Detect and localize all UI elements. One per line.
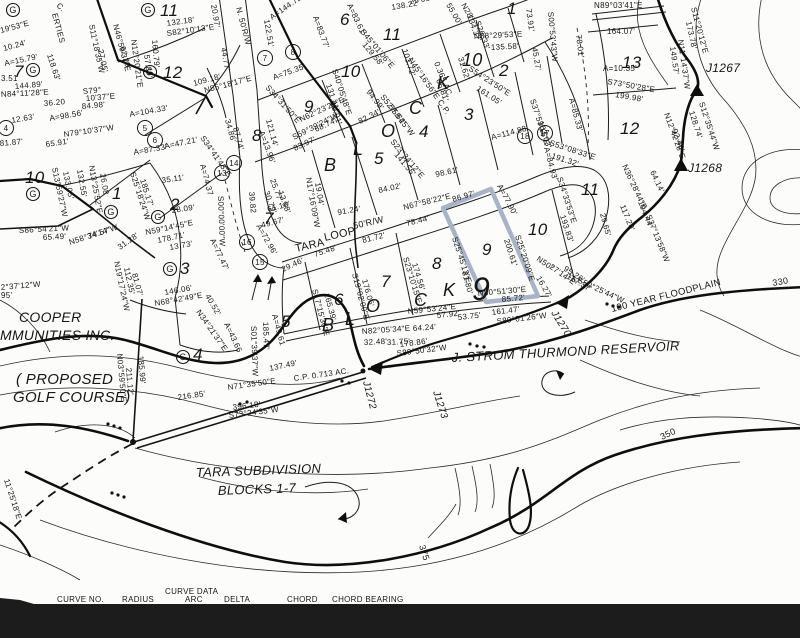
map-label: N82°05'34"E bbox=[362, 324, 411, 336]
map-label: 44.77' bbox=[219, 47, 232, 72]
block-letter: B bbox=[324, 155, 336, 175]
map-label: BLOCKS 1-7 bbox=[218, 480, 297, 498]
map-label: A=84.93' bbox=[542, 146, 560, 181]
map-labels-layer: 19'53"E10.24'A=15.79'3.51144.89'N84°11'2… bbox=[0, 0, 789, 562]
lot-number: 5 bbox=[374, 149, 384, 168]
lot-number: 1 bbox=[112, 184, 122, 203]
map-label: S00°53'43"W bbox=[546, 11, 559, 62]
lot-number: 7 bbox=[264, 209, 274, 228]
map-label: 31.28' bbox=[116, 231, 140, 252]
lot-number: 5 bbox=[281, 312, 291, 331]
map-label: A=83.77' bbox=[311, 15, 331, 50]
lot-number: 11 bbox=[160, 1, 178, 20]
map-label: 36.20 bbox=[43, 97, 65, 108]
block-letter: O bbox=[381, 121, 395, 141]
block-letter: K bbox=[443, 280, 456, 300]
map-label: 185.47' bbox=[261, 322, 271, 351]
control-point-number: 14 bbox=[229, 159, 239, 168]
map-label: J1272 bbox=[360, 379, 378, 411]
golf-lot-marker-letter: G bbox=[29, 189, 36, 199]
map-label: 78.44' bbox=[405, 214, 430, 228]
control-point-number: 8 bbox=[291, 48, 296, 57]
block-letter: L bbox=[353, 139, 363, 159]
lot-number: 6 bbox=[340, 10, 350, 29]
block-letter: 10 bbox=[462, 50, 483, 70]
map-label: 35.11' bbox=[161, 173, 185, 185]
map-label: 132.55' bbox=[75, 169, 89, 198]
golf-lot-marker-letter: G bbox=[144, 5, 151, 15]
block-letter: C bbox=[414, 290, 428, 310]
lot-number: 11 bbox=[383, 25, 401, 44]
map-label: N89°03'41"E bbox=[594, 1, 643, 10]
map-label: 199.98' bbox=[615, 90, 644, 104]
curve-table-column-header: ARC bbox=[185, 595, 203, 604]
lot-number: 8 bbox=[252, 126, 262, 145]
lot-number: 2 bbox=[169, 195, 180, 214]
map-label: S01°39'37"W bbox=[249, 326, 260, 377]
map-label: J1268 bbox=[687, 161, 722, 175]
map-label: MMUNITIES INC. bbox=[0, 327, 115, 343]
lot-number: 12 bbox=[163, 63, 183, 82]
lot-number: 9 bbox=[304, 97, 314, 116]
map-label: 29.65' bbox=[598, 212, 613, 237]
golf-lot-marker-letter: G bbox=[179, 352, 186, 362]
map-label: 330 bbox=[772, 275, 789, 288]
map-label: LOOP bbox=[323, 225, 357, 244]
map-label: 117.20' bbox=[618, 203, 637, 232]
map-label: N84°11'28"E bbox=[1, 87, 49, 99]
lot-number: 8 bbox=[432, 254, 442, 273]
map-label: ERTIES bbox=[50, 12, 67, 44]
block-letter: O bbox=[366, 296, 380, 316]
map-label: A=75.35 bbox=[272, 62, 306, 82]
lot-number: 11 bbox=[581, 180, 599, 199]
lot-number: 10 bbox=[341, 62, 361, 81]
lot-number: 9 bbox=[482, 240, 492, 259]
map-label: A=47.21' bbox=[164, 135, 199, 151]
map-label: TARA SUBDIVISION bbox=[196, 461, 322, 480]
curve-table-column-header: CHORD bbox=[287, 595, 318, 604]
map-label: 122.51' bbox=[262, 19, 276, 48]
map-label: 95' bbox=[1, 291, 12, 300]
map-label: J1273 bbox=[430, 389, 450, 421]
map-label: S37°13'58"W bbox=[644, 213, 671, 263]
map-label: 137.49' bbox=[269, 358, 299, 373]
map-label: 84.02' bbox=[378, 181, 403, 195]
lot-number: 1 bbox=[507, 0, 517, 18]
control-point-number: 17 bbox=[540, 129, 550, 138]
map-label: 12.63' bbox=[11, 112, 36, 125]
map-label: 32.48' bbox=[364, 337, 388, 347]
lot-number: 3 bbox=[464, 105, 474, 124]
plat-map-page: 19'53"E10.24'A=15.79'3.51144.89'N84°11'2… bbox=[0, 0, 800, 638]
map-label: J1270 bbox=[548, 308, 573, 339]
map-label: 74.57' bbox=[87, 225, 112, 241]
map-label: 53.75' bbox=[457, 311, 481, 322]
map-label: J. STROM THURMOND RESERVOIR bbox=[450, 338, 680, 365]
block-letter: L bbox=[345, 309, 355, 329]
map-label: 82.34' bbox=[357, 107, 382, 126]
map-label: A=87.33' bbox=[133, 142, 168, 157]
golf-lot-marker-letter: G bbox=[166, 264, 173, 274]
lot-number: 4 bbox=[193, 345, 203, 364]
golf-lot-marker-letter: G bbox=[107, 207, 114, 217]
lot-number: 2 bbox=[498, 61, 509, 80]
plat-map-canvas: 19'53"E10.24'A=15.79'3.51144.89'N84°11'2… bbox=[0, 0, 800, 638]
golf-lot-marker-letter: G bbox=[154, 212, 161, 222]
control-point-number: 13 bbox=[217, 169, 227, 178]
lot-number: 13 bbox=[622, 53, 642, 72]
map-label: 135.58' bbox=[491, 42, 520, 52]
control-point-number: 4 bbox=[4, 124, 9, 133]
map-label: 78.01' bbox=[574, 34, 586, 58]
control-point-number: 15 bbox=[255, 258, 265, 267]
curve-data-table: CURVE DATACURVE NO.RADIUSARCDELTACHORDCH… bbox=[57, 587, 403, 604]
map-label: 375 bbox=[417, 544, 431, 562]
map-label: 91.24' bbox=[337, 204, 362, 217]
map-label: 39.82 bbox=[247, 191, 258, 213]
curve-table-column-header: CURVE NO. bbox=[57, 595, 104, 604]
letterbox-bar bbox=[0, 598, 800, 638]
map-label: A=85.33' bbox=[567, 97, 585, 132]
map-label: 25'08"E bbox=[409, 0, 440, 6]
golf-lot-marker-letter: G bbox=[9, 5, 16, 15]
block-letter: B bbox=[322, 315, 334, 335]
golf-lot-marker-letter: G bbox=[146, 67, 153, 77]
map-label: 81.72' bbox=[361, 231, 386, 245]
map-label: GOLF COURSE) bbox=[13, 389, 131, 406]
map-label: 45.27' bbox=[530, 47, 543, 72]
map-label: 81.87' bbox=[0, 137, 24, 148]
control-point-number: 5 bbox=[143, 124, 148, 133]
lot-number: 7 bbox=[381, 272, 391, 291]
map-label: 50'R/W bbox=[352, 214, 385, 231]
map-label: 73.91' bbox=[524, 8, 536, 33]
map-label: N71°35'50"E bbox=[227, 376, 276, 392]
map-label: N. 50'R/W bbox=[234, 6, 253, 46]
block-letter: K bbox=[437, 73, 450, 93]
map-label: 64.14' bbox=[648, 169, 666, 194]
control-point-number: 16 bbox=[242, 238, 252, 247]
control-point-number: 6 bbox=[153, 136, 158, 145]
lot-number: 12 bbox=[620, 119, 640, 138]
map-label: A=98.56' bbox=[49, 108, 84, 123]
map-label: 64.24' bbox=[413, 322, 437, 333]
map-label: ( PROPOSED bbox=[16, 371, 113, 388]
lot-number: 3 bbox=[180, 259, 190, 278]
lot-number: 9 bbox=[472, 271, 490, 307]
map-label: 185.99' bbox=[136, 355, 147, 384]
block-letter: C bbox=[409, 98, 423, 118]
lot-number: 4 bbox=[419, 122, 429, 141]
map-label: 118.63' bbox=[45, 53, 62, 82]
map-label: 85.72' bbox=[501, 293, 525, 304]
lot-number: 10 bbox=[25, 168, 45, 187]
map-label: 10.24' bbox=[2, 38, 27, 53]
control-point-number: 7 bbox=[263, 54, 268, 63]
map-label: 164.07' bbox=[607, 27, 635, 36]
lot-number: 10 bbox=[528, 220, 548, 239]
control-point-number: 18 bbox=[520, 132, 530, 141]
map-label: 98.61' bbox=[435, 165, 460, 179]
lot-number: 6 bbox=[334, 290, 344, 309]
map-label: J1267 bbox=[705, 61, 741, 75]
curve-table-column-header: DELTA bbox=[224, 595, 250, 604]
map-label: A=144.72' bbox=[268, 0, 305, 22]
map-label: 11°25'18"E bbox=[2, 478, 24, 521]
map-label: 216.85' bbox=[177, 389, 206, 402]
map-label: A=104.33' bbox=[129, 103, 169, 119]
golf-lot-marker-letter: G bbox=[29, 65, 36, 75]
map-label: C. bbox=[55, 1, 67, 13]
lot-number: 7 bbox=[14, 62, 24, 81]
curve-table-column-header: RADIUS bbox=[122, 595, 154, 604]
map-label: 84.98' bbox=[81, 100, 105, 111]
map-label: COOPER bbox=[19, 309, 81, 325]
curve-table-column-header: CHORD BEARING bbox=[332, 595, 403, 604]
map-label: N88°29'53"E bbox=[474, 29, 523, 41]
map-label: 19'53"E bbox=[0, 19, 30, 35]
map-label: N79°10'37"W bbox=[63, 123, 115, 139]
map-label: 65.49' bbox=[43, 232, 67, 242]
